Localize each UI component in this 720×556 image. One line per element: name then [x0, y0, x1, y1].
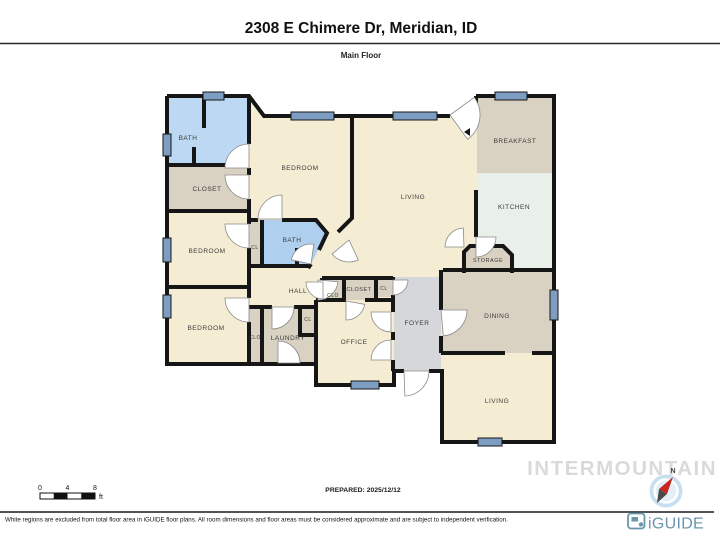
door-swing — [404, 371, 429, 396]
scale-label-8: 8 — [93, 485, 97, 492]
scale-label-4: 4 — [66, 485, 70, 492]
prepared-text: PREPARED: 2025/12/12 — [325, 487, 401, 494]
window — [163, 134, 171, 156]
window — [550, 290, 558, 320]
room-label: OFFICE — [341, 339, 368, 346]
room-breakfast — [477, 96, 554, 173]
room-label: BEDROOM — [281, 165, 318, 172]
page-title: 2308 E Chimere Dr, Meridian, ID — [245, 20, 478, 37]
room-label: KITCHEN — [498, 204, 530, 211]
room-label: HALL — [289, 288, 307, 295]
room-label: DINING — [484, 313, 510, 320]
room-label: LIVING — [401, 194, 425, 201]
room-label: CL — [304, 317, 311, 323]
floor-label: Main Floor — [341, 51, 381, 60]
watermark-text: INTERMOUNTAIN — [527, 457, 717, 480]
iguide-logo-icon — [628, 514, 645, 529]
window — [291, 112, 334, 120]
compass-n-label: N — [670, 468, 675, 475]
room-label: BREAKFAST — [494, 138, 537, 145]
room-label: BEDROOM — [188, 248, 225, 255]
window — [478, 438, 502, 446]
window — [495, 92, 527, 100]
floorplan-drawing: BATHCLOSETBEDROOMBEDROOMBEDROOMBATHCLHAL… — [163, 92, 558, 446]
room-label: BATH — [179, 135, 198, 142]
room-label: CLOSET — [192, 186, 221, 193]
scale-label-0: 0 — [38, 485, 42, 492]
window — [163, 238, 171, 262]
scale-unit: ft — [99, 494, 103, 501]
room-living-2 — [443, 353, 554, 441]
room-label: LAUNDRY — [271, 335, 306, 342]
room-label: LIVING — [485, 398, 509, 405]
scale-bar: 0 4 8 ft — [38, 485, 103, 501]
iguide-logo-text: iGUIDE — [648, 516, 704, 533]
room-label: CLOSET — [346, 287, 371, 293]
window — [351, 381, 379, 389]
room-label: CL — [380, 286, 387, 292]
room-label: BEDROOM — [187, 325, 224, 332]
window — [163, 295, 171, 318]
disclaimer-text: White regions are excluded from total fl… — [5, 517, 508, 524]
room-label: BATH — [283, 237, 302, 244]
room-label: CLO — [327, 293, 339, 299]
iguide-logo: iGUIDE — [628, 514, 704, 533]
floorplan-svg: 2308 E Chimere Dr, Meridian, ID Main Flo… — [0, 0, 720, 556]
window — [393, 112, 437, 120]
room-label: FOYER — [405, 320, 430, 327]
window — [203, 92, 224, 100]
room-label: STORAGE — [473, 258, 503, 264]
room-label: CLO — [249, 335, 261, 341]
floorplan-page: 2308 E Chimere Dr, Meridian, ID Main Flo… — [0, 0, 720, 556]
room-label: CL — [251, 245, 258, 251]
